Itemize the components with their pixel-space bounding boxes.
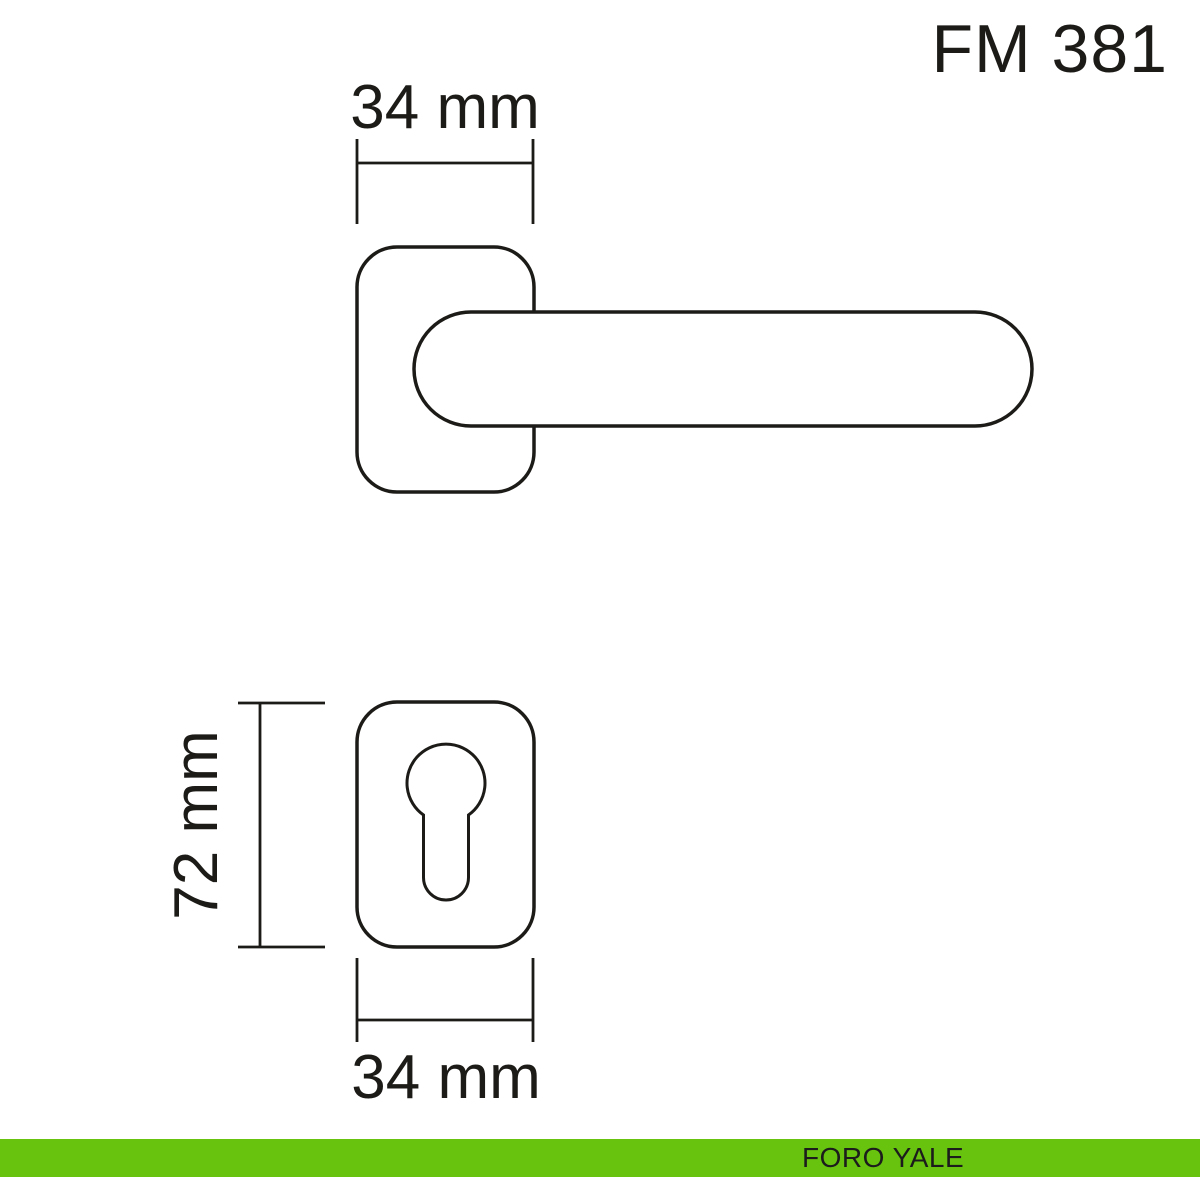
- handle-front-view: [357, 247, 1032, 492]
- bottom-width-dimension-lines: [357, 958, 533, 1042]
- brand-text: FORO YALE: [802, 1144, 964, 1172]
- technical-drawing: [0, 0, 1200, 1200]
- page-title: FM 381: [931, 15, 1168, 83]
- escutcheon-front-view: [357, 702, 534, 947]
- dimension-label-left-height: 72 mm: [166, 730, 228, 919]
- footer-bar: FORO YALE: [0, 1139, 1200, 1177]
- dimension-label-bottom-width: 34 mm: [351, 1047, 540, 1109]
- left-height-dimension-lines: [238, 703, 325, 947]
- product-spec-sheet: FM 381 34 mm 72 mm 34 mm FORO YALE: [0, 0, 1200, 1200]
- dimension-label-top-width: 34 mm: [350, 77, 539, 139]
- top-width-dimension-lines: [357, 139, 533, 224]
- lever-handle-outline: [414, 312, 1032, 426]
